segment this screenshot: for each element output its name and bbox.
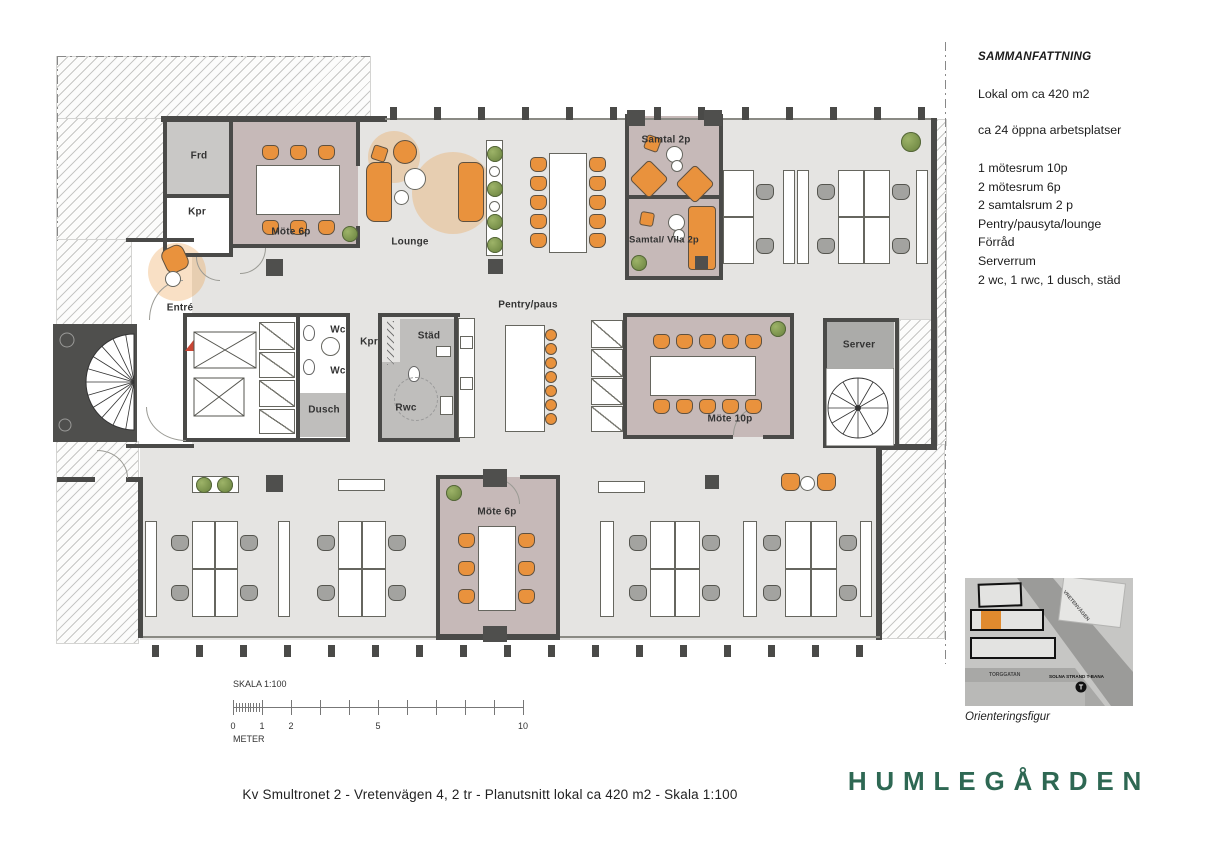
- summary-area: Lokal om ca 420 m2: [978, 87, 1188, 101]
- coat-rack-icon: [387, 321, 394, 365]
- whiteboard: [338, 479, 385, 491]
- pouf-icon: [639, 211, 655, 227]
- room-label-lounge: Lounge: [391, 237, 428, 248]
- summary-item: Serverrum: [978, 252, 1188, 271]
- ruler-tick: [233, 700, 234, 715]
- map-building-3: [971, 638, 1055, 658]
- plant-icon: [487, 214, 503, 230]
- ruler-tick: [245, 703, 246, 712]
- wall: [378, 313, 460, 317]
- ruler-tick: [262, 700, 263, 715]
- chair-icon: [589, 195, 606, 210]
- ruler-tick: [250, 703, 251, 712]
- wall: [378, 438, 460, 442]
- plant-icon: [631, 255, 647, 271]
- summary-list: 1 mötesrum 10p 2 mötesrum 6p 2 samtalsru…: [978, 159, 1188, 289]
- chair-icon: [653, 399, 670, 414]
- side-table-icon: [800, 476, 815, 491]
- locker-cell: [591, 378, 623, 405]
- chair-icon: [745, 334, 762, 349]
- appliance-icon: [460, 377, 473, 390]
- mullion: [196, 645, 203, 657]
- office-chair-icon: [702, 585, 720, 601]
- summary-item: Förråd: [978, 233, 1188, 252]
- locker-cell: [591, 320, 623, 348]
- desk: [838, 170, 864, 217]
- ruler-tick: [253, 703, 254, 712]
- chair-icon: [781, 473, 800, 491]
- desk: [192, 569, 215, 617]
- room-label-frd: Frd: [191, 151, 208, 162]
- summary-item: 2 wc, 1 rwc, 1 dusch, städ: [978, 271, 1188, 290]
- desk: [362, 569, 386, 617]
- column: [266, 259, 283, 276]
- room-label-wc-lower: Wc: [330, 366, 345, 377]
- plant-icon: [901, 132, 921, 152]
- mullion: [328, 645, 335, 657]
- mullion: [856, 645, 863, 657]
- desk: [723, 217, 754, 264]
- chair-icon: [676, 334, 693, 349]
- pentry-island: [505, 325, 545, 432]
- office-chair-icon: [839, 535, 857, 551]
- mullion: [592, 645, 599, 657]
- shaft-cell: [259, 322, 295, 350]
- mullion: [372, 645, 379, 657]
- mullion: [636, 645, 643, 657]
- long-table: [549, 153, 587, 253]
- office-chair-icon: [702, 535, 720, 551]
- wall: [895, 318, 899, 448]
- plant-icon: [217, 477, 233, 493]
- shaft-cell: [259, 380, 295, 407]
- ruler-label-1: 1: [259, 721, 264, 731]
- desk: [362, 521, 386, 569]
- turning-circle: [394, 377, 438, 421]
- wall: [436, 475, 440, 640]
- chair-icon: [722, 399, 739, 414]
- meeting-table: [256, 165, 340, 215]
- room-label-kpr-core: Kpr: [360, 337, 378, 348]
- chair-icon: [745, 399, 762, 414]
- chair-icon: [589, 214, 606, 229]
- wall: [763, 435, 794, 439]
- wall: [378, 313, 382, 442]
- room-label-samtal-2p: Samtal 2p: [641, 135, 690, 146]
- mullion: [724, 645, 731, 657]
- office-chair-icon: [317, 535, 335, 551]
- floor-plan: Frd Kpr Möte 6p Lounge Entré Samtal 2p S…: [0, 0, 960, 680]
- ruler-tick: [494, 700, 495, 715]
- wall: [823, 318, 899, 322]
- pilaster: [483, 469, 507, 487]
- office-chair-icon: [763, 585, 781, 601]
- ruler-label-5: 5: [375, 721, 380, 731]
- lounge-table-icon: [404, 168, 426, 190]
- wall: [623, 313, 627, 439]
- ruler-tick: [256, 703, 257, 712]
- side-table-icon: [671, 160, 683, 172]
- ruler-tick: [407, 700, 408, 715]
- wall: [627, 195, 721, 199]
- wall-right-upper: [931, 118, 937, 450]
- office-chair-icon: [817, 238, 835, 254]
- ruler-tick: [465, 700, 466, 715]
- chair-icon: [722, 334, 739, 349]
- ruler-tick: [248, 703, 249, 712]
- mullion: [768, 645, 775, 657]
- mullion: [548, 645, 555, 657]
- mullion: [152, 645, 159, 657]
- desk: [192, 521, 215, 569]
- mullion: [654, 107, 661, 120]
- pouf-icon: [393, 140, 417, 164]
- wall: [126, 444, 194, 448]
- ruler-tick: [239, 703, 240, 712]
- mullion: [478, 107, 485, 120]
- office-chair-icon: [317, 585, 335, 601]
- wall: [296, 315, 300, 438]
- ruler-tick: [291, 700, 292, 715]
- stool-icon: [545, 343, 557, 355]
- mullion: [284, 645, 291, 657]
- map-highlight-premises: [981, 611, 1001, 629]
- stool-icon: [545, 399, 557, 411]
- chair-icon: [290, 145, 307, 160]
- room-label-server: Server: [843, 340, 875, 351]
- toilet-icon: [303, 359, 315, 375]
- office-chair-icon: [756, 238, 774, 254]
- office-chair-icon: [388, 535, 406, 551]
- wall: [229, 118, 233, 257]
- plant-icon: [446, 485, 462, 501]
- plant-icon: [487, 237, 503, 253]
- meeting-table: [478, 526, 516, 611]
- plant-icon: [770, 321, 786, 337]
- desk: [864, 170, 890, 217]
- chair-icon: [458, 561, 475, 576]
- room-label-entre: Entré: [167, 303, 194, 314]
- summary-item: 2 mötesrum 6p: [978, 178, 1188, 197]
- pilaster: [483, 626, 507, 642]
- elevator-icon: [193, 377, 245, 417]
- pilaster: [627, 110, 645, 126]
- spiral-stair-icon: [826, 368, 894, 446]
- humlegarden-logo: HUMLEGÅRDEN: [838, 766, 1160, 797]
- appliance-icon: [460, 336, 473, 349]
- plant-icon: [487, 181, 503, 197]
- mullion: [504, 645, 511, 657]
- office-chair-icon: [892, 184, 910, 200]
- armchair-icon: [458, 162, 484, 222]
- shaft-cell: [259, 409, 295, 434]
- scale-ruler: 0 1 2 5 10: [233, 699, 523, 719]
- map-block-bottom: [965, 682, 1085, 706]
- wall: [520, 475, 560, 479]
- shaft-cell: [259, 352, 295, 378]
- plant-icon: [196, 477, 212, 493]
- office-chair-icon: [629, 585, 647, 601]
- chair-icon: [518, 589, 535, 604]
- chair-icon: [458, 533, 475, 548]
- stool-icon: [545, 413, 557, 425]
- stool-icon: [545, 385, 557, 397]
- elevator-icon: [193, 331, 257, 369]
- mullion: [786, 107, 793, 120]
- chair-icon: [262, 145, 279, 160]
- chair-icon: [318, 145, 335, 160]
- ruler-tick: [378, 700, 379, 715]
- summary-item: 2 samtalsrum 2 p: [978, 196, 1188, 215]
- washbasin-icon: [321, 337, 340, 356]
- chair-icon: [653, 334, 670, 349]
- plant-icon: [487, 146, 503, 162]
- ruler-tick: [242, 703, 243, 712]
- room-label-pentry-paus: Pentry/paus: [498, 300, 557, 311]
- mullion: [390, 107, 397, 120]
- hatch-right-lower: [882, 445, 944, 638]
- pot-icon: [489, 201, 500, 212]
- room-label-samtal-vila-2p: Samtal/ Vila 2p: [629, 235, 699, 246]
- orientation-caption: Orienteringsfigur: [965, 711, 1050, 723]
- desk: [785, 521, 811, 569]
- desk: [650, 569, 675, 617]
- office-chair-icon: [171, 585, 189, 601]
- ruler-tick: [436, 700, 437, 715]
- mullion: [416, 645, 423, 657]
- boundary-line-top: [57, 56, 372, 57]
- chair-icon: [676, 399, 693, 414]
- summary-item: Pentry/pausyta/lounge: [978, 215, 1188, 234]
- office-chair-icon: [388, 585, 406, 601]
- round-stair-icon: [53, 324, 137, 442]
- office-chair-icon: [839, 585, 857, 601]
- boundary-line-left: [57, 56, 58, 241]
- mullion: [460, 645, 467, 657]
- chair-icon: [530, 195, 547, 210]
- whiteboard: [598, 481, 645, 493]
- chair-icon: [518, 561, 535, 576]
- locker-cell: [591, 349, 623, 377]
- room-label-mote-6p-top: Möte 6p: [271, 227, 310, 238]
- sideboard: [743, 521, 757, 617]
- chair-icon: [589, 157, 606, 172]
- office-chair-icon: [892, 238, 910, 254]
- desk: [785, 569, 811, 617]
- summary-item: 1 mötesrum 10p: [978, 159, 1188, 178]
- property-line-right: [945, 42, 946, 664]
- room-label-wc-upper: Wc: [330, 325, 345, 336]
- room-label-dusch: Dusch: [308, 405, 340, 416]
- ruler-tick: [349, 700, 350, 715]
- chair-icon: [518, 533, 535, 548]
- toilet-icon: [303, 325, 315, 341]
- sink-icon: [440, 396, 453, 415]
- scale-title: SKALA 1:100: [233, 679, 287, 689]
- chair-icon: [699, 334, 716, 349]
- summary-panel: SAMMANFATTNING Lokal om ca 420 m2 ca 24 …: [978, 50, 1188, 289]
- hatch-left-upper: [57, 119, 165, 240]
- room-label-rwc: Rwc: [395, 403, 416, 414]
- orientation-map: VRETENVÄGEN TORGGATAN SOLNA STRAND T-BAN…: [965, 578, 1133, 706]
- mullion: [610, 107, 617, 120]
- side-table-icon: [165, 271, 181, 287]
- chair-icon: [530, 176, 547, 191]
- metro-symbol: T: [1079, 685, 1084, 692]
- ruler-tick: [236, 703, 237, 712]
- lounge-table-icon: [394, 190, 409, 205]
- room-label-mote-6p-bottom: Möte 6p: [477, 507, 516, 518]
- wall: [790, 313, 794, 439]
- mullion: [240, 645, 247, 657]
- stool-icon: [545, 329, 557, 341]
- wall: [356, 120, 360, 166]
- mullion: [874, 107, 881, 120]
- locker-cell: [591, 406, 623, 432]
- desk: [338, 521, 362, 569]
- wall-right-lower: [876, 444, 882, 640]
- office-chair-icon: [756, 184, 774, 200]
- armchair-icon: [366, 162, 392, 222]
- wall: [346, 313, 350, 442]
- office-chair-icon: [629, 535, 647, 551]
- map-metro-label: SOLNA STRAND T-BANA: [1049, 674, 1105, 679]
- ruler-tick: [523, 700, 524, 715]
- mullion: [522, 107, 529, 120]
- map-building-1: [979, 583, 1022, 606]
- sink-icon: [436, 346, 451, 357]
- floorplan-page: { "summary": { "title": "SAMMANFATTNING"…: [0, 0, 1220, 863]
- footer-title: Kv Smultronet 2 - Vretenvägen 4, 2 tr - …: [180, 787, 800, 802]
- office-chair-icon: [240, 585, 258, 601]
- room-label-mote-10p: Möte 10p: [708, 414, 753, 425]
- ruler-label-2: 2: [288, 721, 293, 731]
- summary-workplaces: ca 24 öppna arbetsplatser: [978, 123, 1188, 137]
- desk: [675, 521, 700, 569]
- wall-top: [161, 116, 387, 122]
- desk: [723, 170, 754, 217]
- office-chair-icon: [763, 535, 781, 551]
- mullion: [812, 645, 819, 657]
- sideboard: [797, 170, 809, 264]
- stool-icon: [545, 371, 557, 383]
- office-chair-icon: [240, 535, 258, 551]
- sideboard: [145, 521, 157, 617]
- chair-icon: [458, 589, 475, 604]
- room-label-stad: Städ: [418, 331, 440, 342]
- desk: [838, 217, 864, 264]
- desk: [811, 521, 837, 569]
- column: [488, 259, 503, 274]
- desk: [675, 569, 700, 617]
- ruler-label-10: 10: [518, 721, 528, 731]
- desk: [811, 569, 837, 617]
- desk: [215, 521, 238, 569]
- room-label-kpr-entrance: Kpr: [188, 207, 206, 218]
- office-chair-icon: [817, 184, 835, 200]
- hatch-top-left: [57, 57, 370, 119]
- sideboard: [916, 170, 928, 264]
- mullion: [434, 107, 441, 120]
- chair-icon: [530, 157, 547, 172]
- desk: [864, 217, 890, 264]
- stool-icon: [545, 357, 557, 369]
- desk: [215, 569, 238, 617]
- scale-unit: METER: [233, 734, 265, 744]
- chair-icon: [817, 473, 836, 491]
- wall: [57, 477, 95, 482]
- summary-title: SAMMANFATTNING: [978, 50, 1188, 63]
- sideboard: [278, 521, 290, 617]
- wall: [183, 313, 350, 317]
- office-chair-icon: [171, 535, 189, 551]
- pot-icon: [489, 166, 500, 177]
- wall: [556, 475, 560, 640]
- ruler-tick: [320, 700, 321, 715]
- mullion: [918, 107, 925, 120]
- ruler-label-0: 0: [230, 721, 235, 731]
- sideboard: [600, 521, 614, 617]
- wall: [138, 482, 143, 638]
- chair-icon: [699, 399, 716, 414]
- chair-icon: [589, 176, 606, 191]
- desk: [338, 569, 362, 617]
- wall: [163, 194, 232, 198]
- column: [695, 256, 708, 269]
- sideboard: [860, 521, 872, 617]
- wall: [183, 438, 350, 442]
- wall: [623, 435, 733, 439]
- map-building-neighbor: [1059, 578, 1126, 628]
- mullion: [566, 107, 573, 120]
- hatch-left-mid: [57, 240, 131, 328]
- column: [266, 475, 283, 492]
- meeting-table: [650, 356, 756, 396]
- mullion: [830, 107, 837, 120]
- chair-icon: [530, 214, 547, 229]
- sideboard: [783, 170, 795, 264]
- chair-icon: [530, 233, 547, 248]
- ruler-tick: [259, 703, 260, 712]
- wall: [126, 238, 194, 242]
- mullion: [742, 107, 749, 120]
- pilaster: [704, 110, 722, 126]
- map-street-torggatan: TORGGATAN: [989, 672, 1021, 678]
- wall: [627, 276, 721, 280]
- chair-icon: [589, 233, 606, 248]
- chair-icon: [318, 220, 335, 235]
- wall: [623, 313, 794, 317]
- desk: [650, 521, 675, 569]
- plant-icon: [342, 226, 358, 242]
- column: [705, 475, 719, 489]
- mullion: [680, 645, 687, 657]
